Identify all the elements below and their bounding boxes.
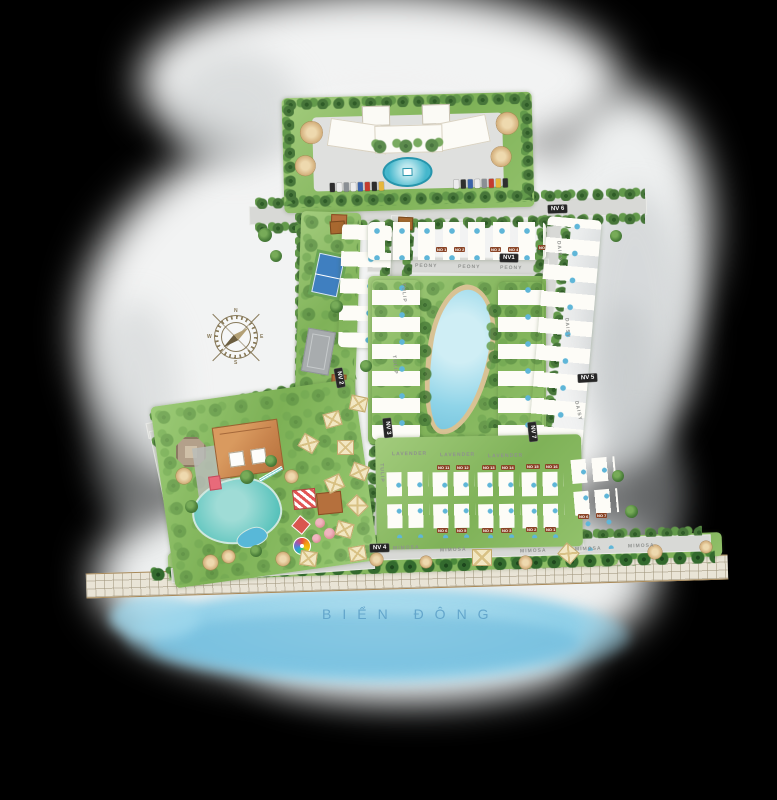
tree [625, 505, 638, 518]
tree [250, 545, 262, 557]
street-label-mimosa: MIMOSA [575, 546, 602, 553]
villa-cluster [570, 448, 623, 551]
street-label-lavender: LAVENDER [440, 452, 475, 459]
villa-number-chip: NO 16 [545, 464, 559, 469]
street-label-lavender: LAVENDER [488, 453, 523, 460]
street-label-tulip: TULIP [400, 283, 407, 303]
tree-row [286, 189, 532, 208]
street-label-mimosa: MIMOSA [520, 548, 547, 555]
villa-row-north [368, 222, 546, 260]
compass-w: W [207, 334, 212, 340]
beach-pavilion [472, 549, 492, 566]
villa-number-chip: NO 14 [501, 465, 515, 470]
tree [240, 470, 254, 484]
watercolor-blob [595, 300, 655, 460]
play-pavilion [316, 491, 343, 515]
villa-number-chip: NO 2 [454, 247, 465, 252]
street-label-lavender: LAVENDER [392, 451, 427, 458]
street-label-peony: PEONY [415, 263, 438, 269]
watercolor-blob [170, 50, 300, 170]
plaza-circle [295, 155, 316, 176]
tree-row [282, 104, 297, 206]
courtyard-garden [371, 136, 445, 158]
umbrella [285, 470, 298, 483]
zone-badge-nv6: NV 6 [548, 205, 568, 214]
villa-number-chip: NO 13 [482, 465, 496, 470]
umbrella [276, 552, 290, 566]
villa-number-chip: NO 2 [526, 527, 537, 532]
villa-number-chip: NO 7 [596, 513, 607, 518]
compass: N S E W [207, 308, 265, 366]
tree [612, 470, 624, 482]
tree [610, 230, 622, 242]
umbrella [176, 468, 192, 484]
tree [360, 360, 372, 372]
candy-kiosk [292, 488, 317, 510]
compass-s: S [234, 360, 237, 366]
tree [330, 300, 343, 313]
villa-number-chip: NO 5 [456, 528, 467, 533]
street-label-mimosa: MIMOSA [628, 543, 655, 550]
cabana [337, 440, 354, 455]
plaza-circle [496, 112, 519, 135]
umbrella [370, 553, 383, 566]
villa-number-chip: NO 3 [490, 247, 501, 252]
pink-tree [324, 528, 335, 539]
sea-label: BIỂN ĐÔNG [322, 606, 500, 622]
tree [270, 250, 282, 262]
pink-tree [312, 534, 321, 543]
pink-kiosk [208, 475, 222, 491]
compass-n: N [234, 308, 238, 314]
umbrella [203, 555, 218, 570]
zone-badge-nv4: NV 4 [370, 544, 390, 553]
umbrella [420, 556, 432, 568]
cabana [299, 550, 318, 567]
villa-number-chip: NO 6 [437, 528, 448, 533]
tree [258, 228, 272, 242]
villa-number-chip: NO 11 [437, 465, 450, 470]
street-label-peony: PEONY [500, 265, 523, 271]
villa-number-chip: NO 15 [526, 464, 540, 469]
compass-e: E [260, 334, 263, 340]
cabana [348, 545, 367, 563]
villa-cluster [386, 464, 429, 539]
pink-tree [315, 518, 325, 528]
umbrella [519, 556, 532, 569]
villa-number-chip: NO 6 [578, 514, 589, 519]
villa-number-chip: NO 4 [482, 528, 493, 533]
villa-number-chip: NO 1 [436, 247, 447, 252]
umbrella [222, 550, 235, 563]
tower-parcel [282, 92, 535, 214]
street-label-peony: PEONY [458, 264, 481, 270]
villa-number-chip: NO 1 [545, 527, 556, 532]
tree [265, 455, 277, 467]
cabana [349, 394, 369, 412]
umbrella [700, 541, 712, 553]
master-plan-canvas: BIỂN ĐÔNG [0, 0, 777, 800]
villa-number-chip: NO 3 [501, 528, 512, 533]
zone-badge-nv1: NV1 [500, 254, 518, 262]
street-label-mimosa: MIMOSA [440, 547, 467, 554]
plaza-circle [491, 146, 512, 167]
sea-water [110, 595, 200, 640]
villa-number-chip: NO 4 [508, 247, 519, 252]
zone-badge-nv5: NV 5 [578, 373, 598, 382]
street-label-mimosa: MIMOSA [393, 545, 420, 552]
villa-number-chip: NO 12 [456, 465, 470, 470]
tree [185, 500, 198, 513]
street-label-tulip: TULIP [378, 463, 385, 483]
